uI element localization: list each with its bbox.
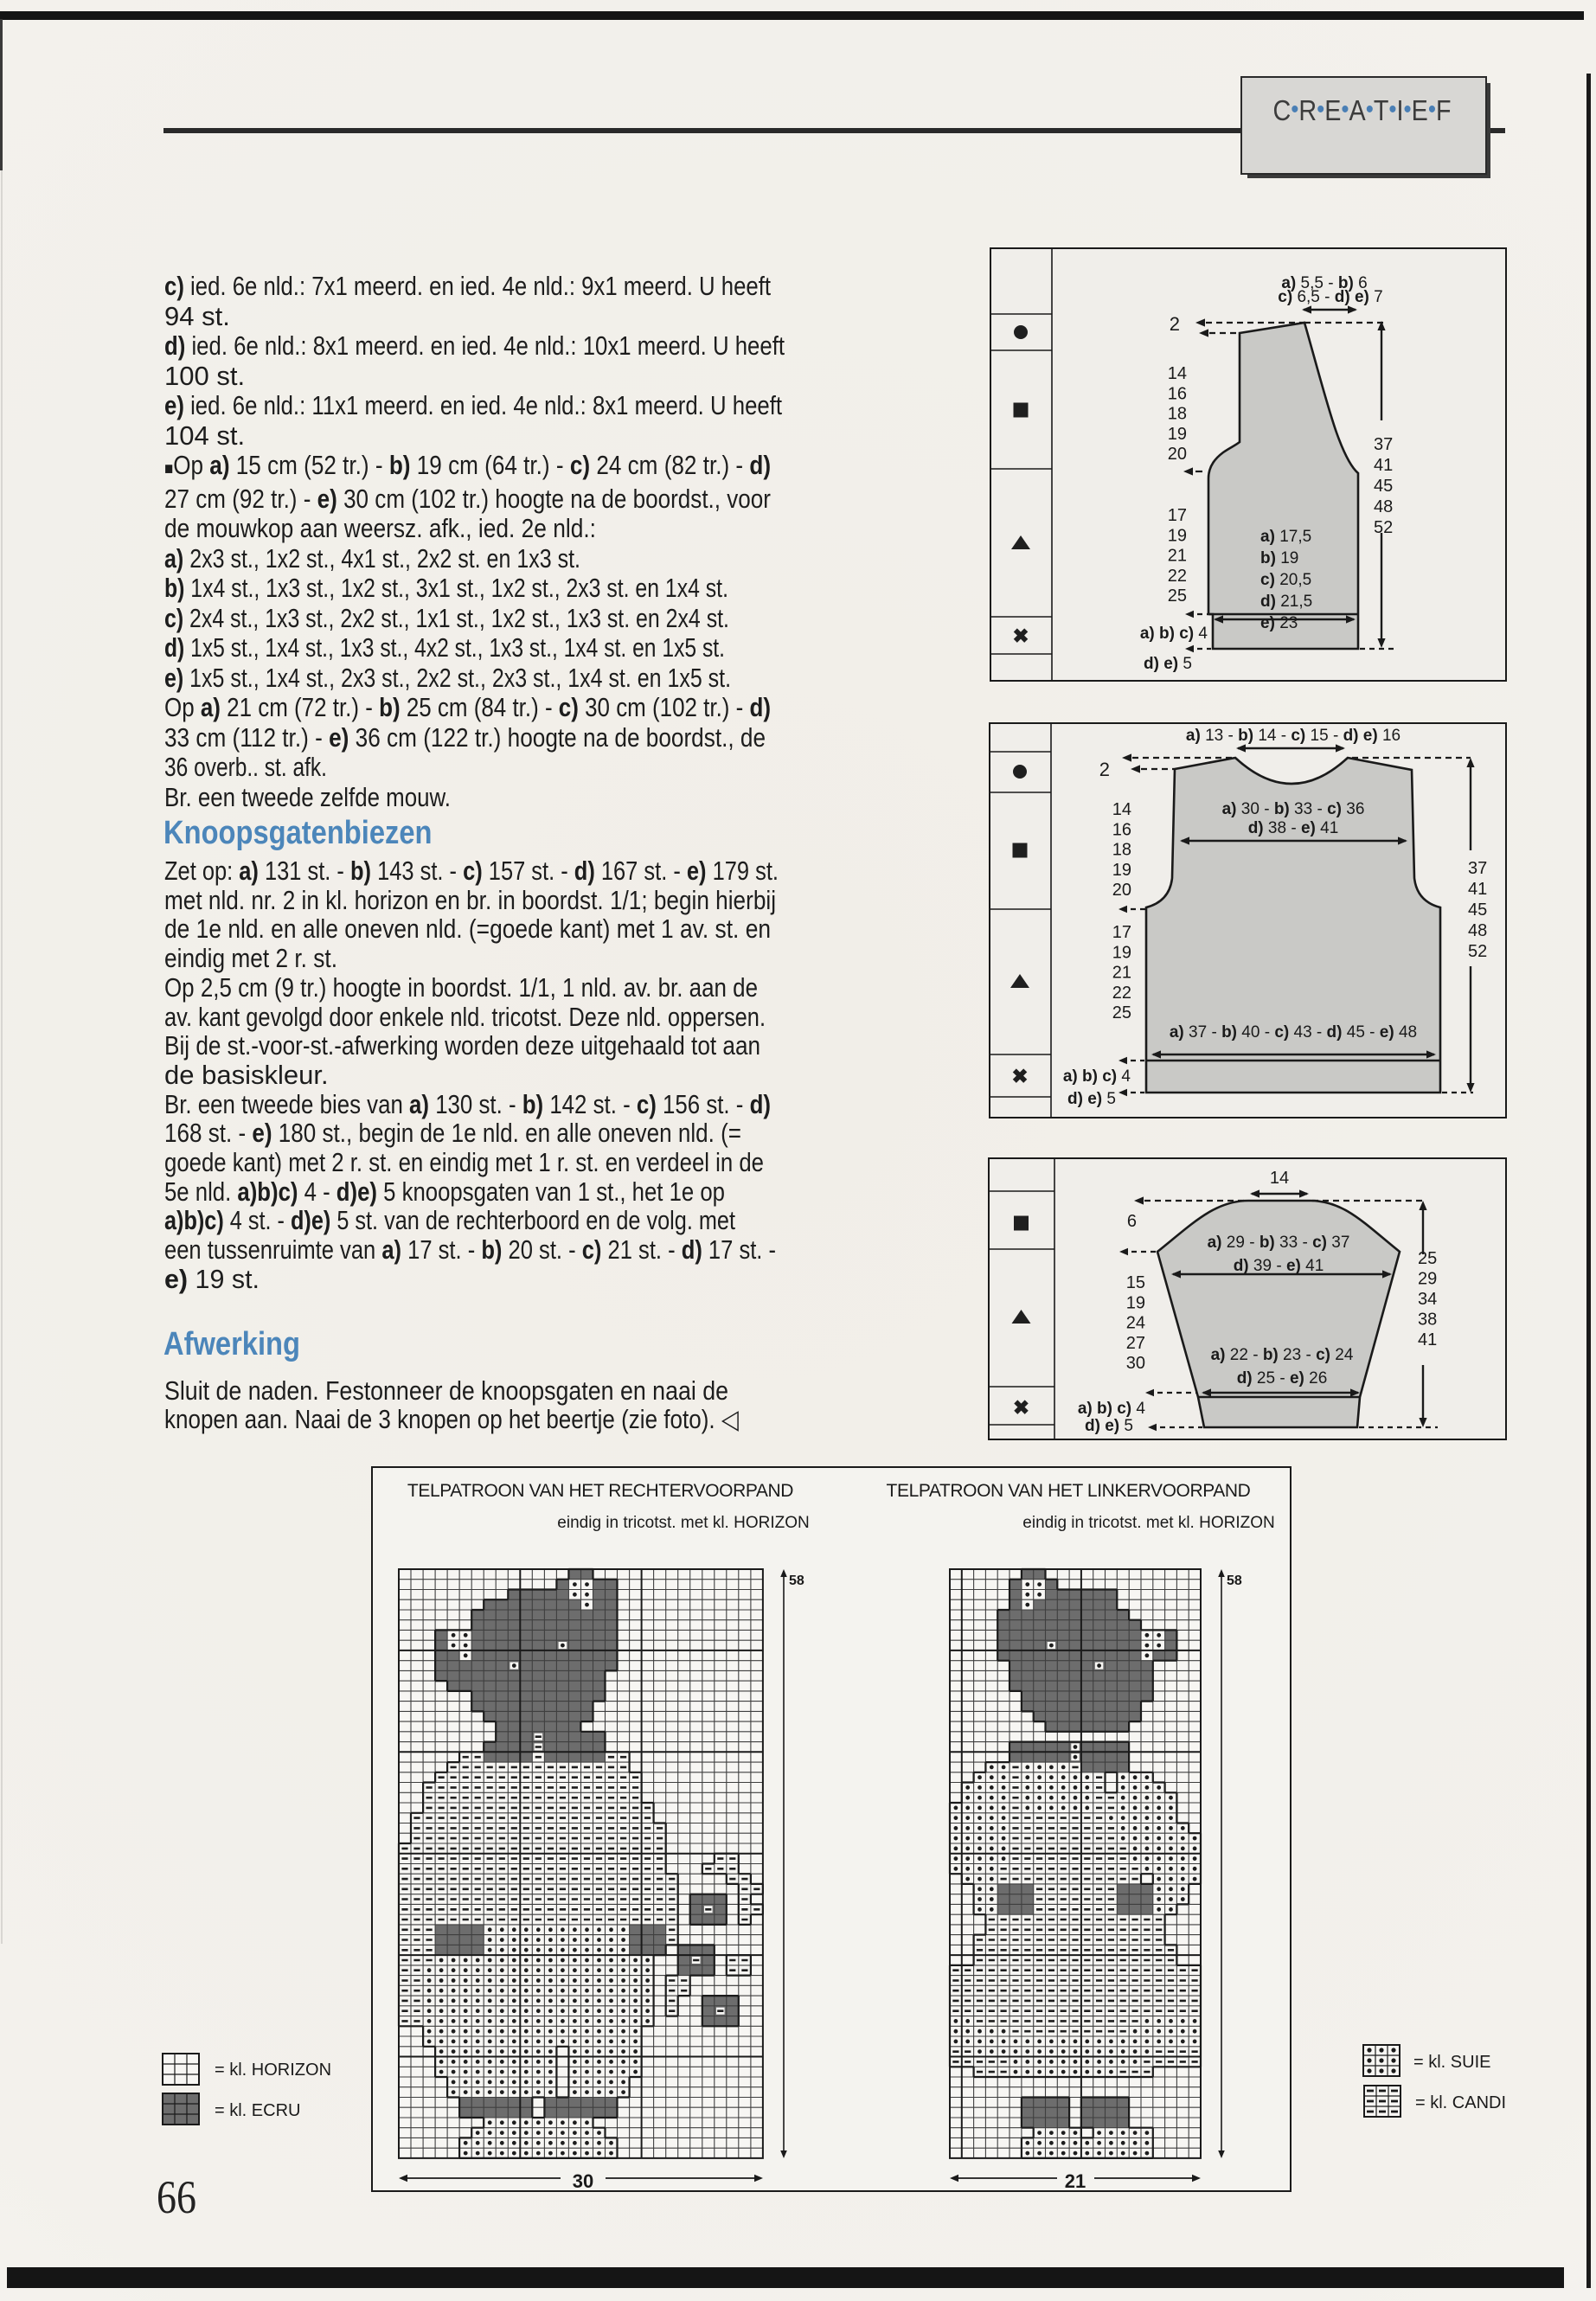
svg-text:17: 17 [1168, 506, 1187, 525]
svg-text:d) 21,5: d) 21,5 [1260, 593, 1312, 611]
svg-text:d) e) 5: d) e) 5 [1067, 1090, 1116, 1108]
svg-text:27: 27 [1126, 1334, 1145, 1353]
svg-text:21: 21 [1112, 964, 1131, 983]
svg-text:19: 19 [1168, 425, 1187, 444]
svg-text:a) 17,5: a) 17,5 [1260, 528, 1311, 546]
svg-text:a) b) c) 4: a) b) c) 4 [1063, 1067, 1131, 1086]
svg-text:20: 20 [1168, 445, 1187, 464]
svg-text:✖: ✖ [1013, 1396, 1029, 1419]
svg-text:58: 58 [1227, 1574, 1242, 1588]
svg-text:14: 14 [1112, 800, 1131, 819]
svg-text:e) 23: e) 23 [1260, 614, 1298, 632]
svg-text:21: 21 [1168, 547, 1187, 566]
svg-text:45: 45 [1374, 477, 1393, 496]
svg-text:✖: ✖ [1012, 625, 1029, 647]
svg-text:d) 38 - e) 41: d) 38 - e) 41 [1248, 819, 1339, 837]
svg-text:19: 19 [1112, 861, 1131, 880]
svg-text:48: 48 [1468, 921, 1487, 940]
svg-text:30: 30 [1126, 1354, 1145, 1373]
svg-text:15: 15 [1126, 1273, 1145, 1292]
svg-text:c) 6,5 - d) e) 7: c) 6,5 - d) e) 7 [1278, 288, 1382, 306]
svg-text:19: 19 [1168, 526, 1187, 545]
svg-text:a) 22 - b) 23 - c) 24: a) 22 - b) 23 - c) 24 [1211, 1346, 1354, 1364]
svg-text:21: 21 [1065, 2170, 1086, 2192]
svg-text:2: 2 [1170, 313, 1180, 335]
svg-text:48: 48 [1374, 497, 1393, 516]
svg-text:24: 24 [1126, 1314, 1145, 1333]
svg-text:2: 2 [1099, 759, 1110, 780]
svg-text:19: 19 [1126, 1293, 1145, 1312]
svg-text:a) b) c) 4: a) b) c) 4 [1140, 625, 1208, 643]
svg-text:eindig in tricotst. met kl. HO: eindig in tricotst. met kl. HORIZON [1022, 1514, 1274, 1532]
svg-text:6: 6 [1127, 1212, 1137, 1231]
svg-text:16: 16 [1168, 384, 1187, 403]
svg-text:25: 25 [1112, 1003, 1131, 1022]
svg-text:c) 20,5: c) 20,5 [1260, 571, 1311, 589]
svg-text:d) 39 - e) 41: d) 39 - e) 41 [1234, 1257, 1324, 1275]
svg-text:38: 38 [1418, 1311, 1437, 1330]
svg-text:16: 16 [1112, 820, 1131, 839]
svg-text:d) 25 - e) 26: d) 25 - e) 26 [1237, 1369, 1328, 1388]
svg-text:✖: ✖ [1011, 1065, 1028, 1087]
svg-text:18: 18 [1168, 405, 1187, 424]
svg-text:14: 14 [1168, 364, 1187, 383]
svg-text:52: 52 [1374, 518, 1393, 537]
svg-text:= kl. HORIZON: = kl. HORIZON [215, 2061, 331, 2080]
svg-text:45: 45 [1468, 901, 1487, 920]
svg-text:29: 29 [1418, 1270, 1437, 1289]
svg-text:37: 37 [1374, 435, 1393, 454]
svg-text:a) 37 - b) 40 - c) 43 - d) 45: a) 37 - b) 40 - c) 43 - d) 45 - e) 48 [1170, 1023, 1417, 1042]
svg-text:41: 41 [1468, 880, 1487, 899]
svg-text:25: 25 [1168, 586, 1187, 606]
svg-text:41: 41 [1374, 456, 1393, 475]
svg-text:TELPATROON VAN HET LINKERVOORP: TELPATROON VAN HET LINKERVOORPAND [887, 1481, 1251, 1501]
svg-text:18: 18 [1112, 841, 1131, 860]
svg-text:TELPATROON VAN HET RECHTERVOOR: TELPATROON VAN HET RECHTERVOORPAND [407, 1481, 793, 1501]
svg-text:a) 29 - b) 33 - c) 37: a) 29 - b) 33 - c) 37 [1208, 1234, 1350, 1252]
svg-text:d) e) 5: d) e) 5 [1085, 1417, 1133, 1435]
svg-text:58: 58 [789, 1574, 804, 1588]
svg-text:34: 34 [1418, 1290, 1437, 1309]
svg-text:a) b) c) 4: a) b) c) 4 [1078, 1400, 1146, 1418]
svg-text:30: 30 [573, 2170, 593, 2192]
svg-text:25: 25 [1418, 1249, 1437, 1268]
svg-text:= kl. SUIE: = kl. SUIE [1413, 2053, 1490, 2072]
svg-text:37: 37 [1468, 859, 1487, 878]
svg-text:14: 14 [1270, 1169, 1289, 1188]
svg-text:a) 30 - b) 33 - c) 36: a) 30 - b) 33 - c) 36 [1222, 800, 1365, 818]
svg-text:22: 22 [1168, 567, 1187, 586]
svg-text:b) 19: b) 19 [1260, 549, 1298, 567]
svg-text:a) 13 - b) 14 - c) 15 - d) e): a) 13 - b) 14 - c) 15 - d) e) 16 [1186, 727, 1401, 745]
svg-text:52: 52 [1468, 942, 1487, 961]
svg-text:20: 20 [1112, 881, 1131, 900]
svg-text:eindig in tricotst. met kl. HO: eindig in tricotst. met kl. HORIZON [557, 1514, 809, 1532]
svg-text:22: 22 [1112, 984, 1131, 1003]
svg-text:41: 41 [1418, 1330, 1437, 1349]
svg-text:17: 17 [1112, 923, 1131, 942]
svg-text:d) e) 5: d) e) 5 [1144, 655, 1192, 673]
svg-text:19: 19 [1112, 943, 1131, 962]
svg-text:= kl. ECRU: = kl. ECRU [215, 2101, 300, 2120]
svg-text:= kl. CANDI: = kl. CANDI [1415, 2093, 1506, 2112]
